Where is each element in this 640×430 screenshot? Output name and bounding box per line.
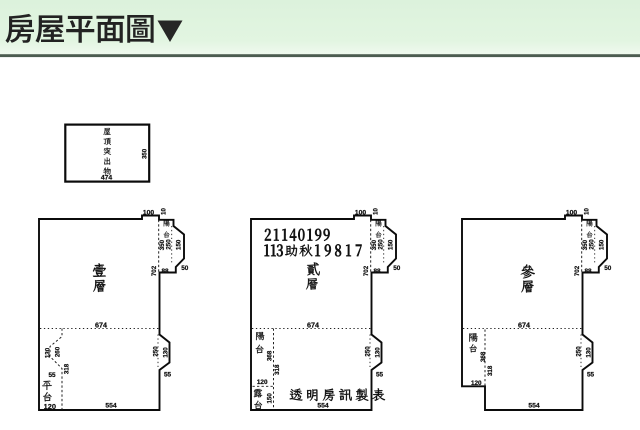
svg-text:368: 368 xyxy=(267,350,274,361)
svg-text:100: 100 xyxy=(143,210,155,217)
svg-text:250: 250 xyxy=(365,346,372,357)
svg-text:554: 554 xyxy=(528,403,540,410)
svg-text:10: 10 xyxy=(585,208,591,215)
svg-text:88: 88 xyxy=(584,268,592,275)
svg-text:55: 55 xyxy=(587,372,595,379)
svg-text:250: 250 xyxy=(153,346,160,357)
svg-text:50: 50 xyxy=(604,265,612,272)
svg-text:130: 130 xyxy=(45,347,52,358)
svg-text:130: 130 xyxy=(163,347,170,358)
svg-text:120: 120 xyxy=(257,379,268,386)
svg-text:55: 55 xyxy=(48,372,56,379)
svg-text:250: 250 xyxy=(589,239,596,250)
svg-text:10: 10 xyxy=(162,208,168,215)
svg-text:150: 150 xyxy=(176,239,183,250)
svg-text:130: 130 xyxy=(375,347,382,358)
svg-text:100: 100 xyxy=(566,210,578,217)
svg-text:702: 702 xyxy=(574,265,581,276)
svg-text:474: 474 xyxy=(101,174,113,181)
svg-text:150: 150 xyxy=(267,393,274,404)
svg-text:88: 88 xyxy=(161,268,169,275)
svg-text:50: 50 xyxy=(181,265,189,272)
svg-text:100: 100 xyxy=(355,210,367,217)
svg-text:250: 250 xyxy=(576,346,583,357)
svg-text:88: 88 xyxy=(373,268,381,275)
svg-text:318: 318 xyxy=(487,365,494,376)
svg-text:702: 702 xyxy=(151,265,158,276)
svg-text:120: 120 xyxy=(44,402,56,411)
svg-text:10: 10 xyxy=(374,208,380,215)
svg-text:702: 702 xyxy=(363,265,370,276)
svg-text:674: 674 xyxy=(518,321,530,330)
svg-text:55: 55 xyxy=(376,372,384,379)
svg-text:150: 150 xyxy=(388,239,395,250)
svg-text:674: 674 xyxy=(95,321,107,330)
svg-text:150: 150 xyxy=(599,239,606,250)
svg-text:318: 318 xyxy=(274,364,281,375)
svg-text:250: 250 xyxy=(378,239,385,250)
svg-text:554: 554 xyxy=(317,403,329,410)
svg-text:260: 260 xyxy=(55,346,62,357)
svg-text:120: 120 xyxy=(471,380,482,387)
svg-text:674: 674 xyxy=(307,321,319,330)
svg-text:368: 368 xyxy=(480,351,487,362)
svg-text:350: 350 xyxy=(143,148,149,159)
svg-text:318: 318 xyxy=(64,363,71,374)
svg-text:130: 130 xyxy=(586,347,593,358)
svg-text:554: 554 xyxy=(105,403,117,410)
svg-text:55: 55 xyxy=(164,372,172,379)
svg-text:250: 250 xyxy=(166,239,173,250)
svg-text:50: 50 xyxy=(393,265,401,272)
